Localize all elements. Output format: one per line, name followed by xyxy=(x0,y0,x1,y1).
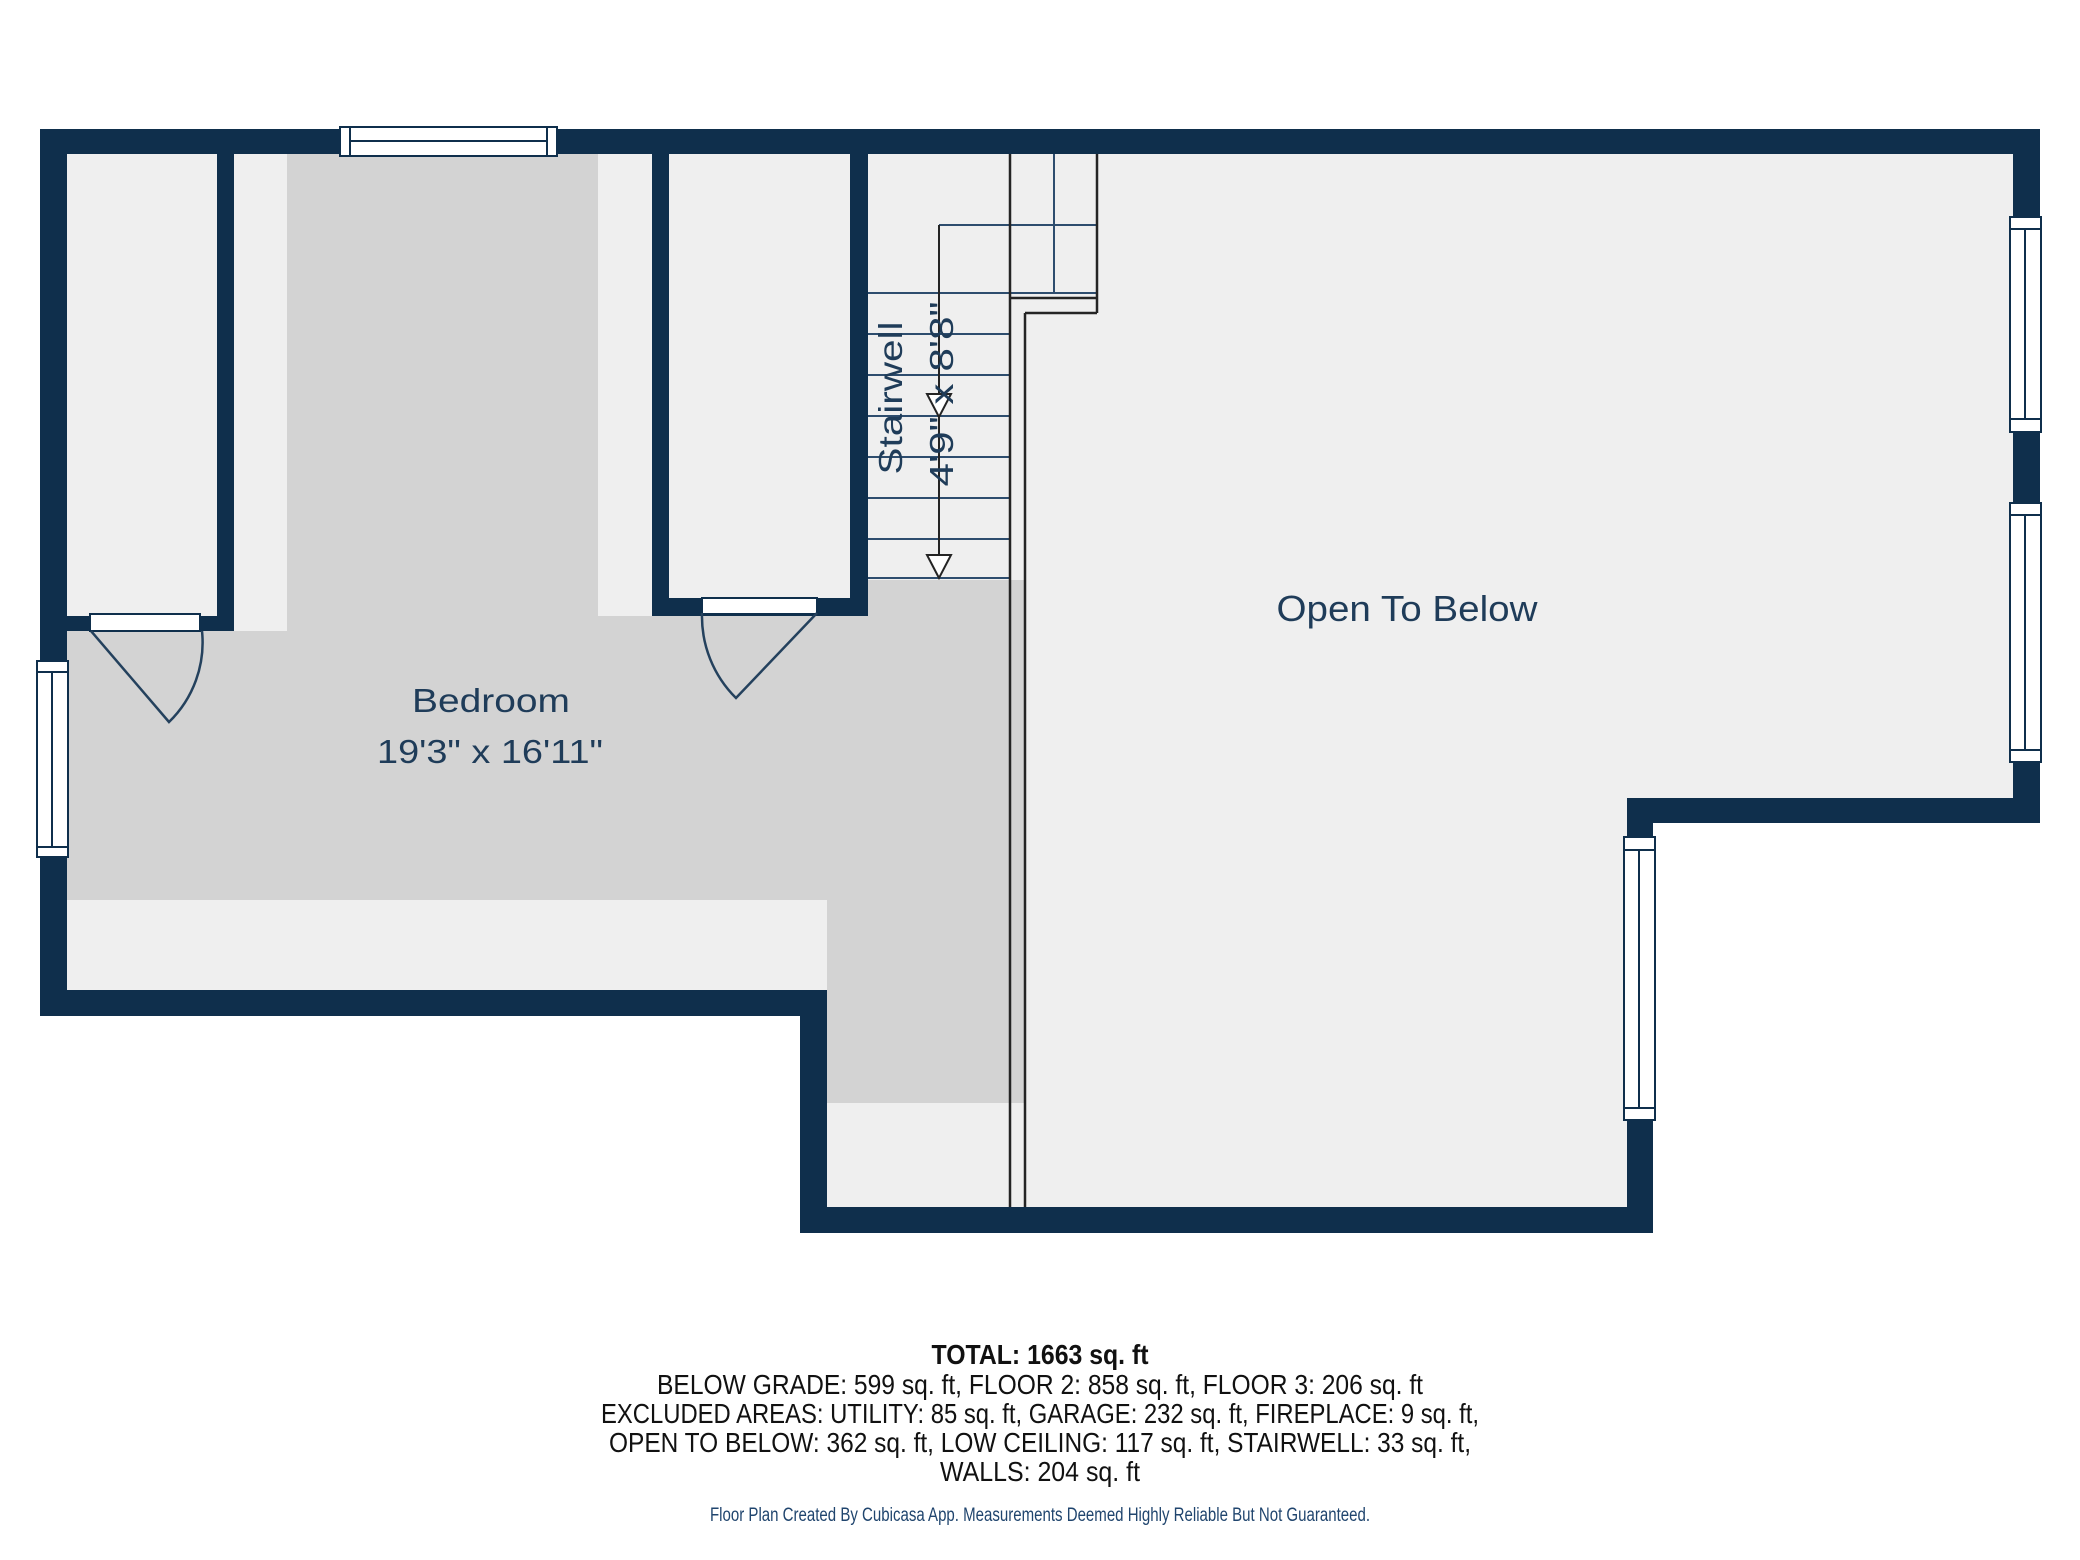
footer-note: Floor Plan Created By Cubicasa App. Meas… xyxy=(710,1505,1370,1526)
summary-walls: WALLS: 204 sq. ft xyxy=(940,1456,1140,1487)
bedroom-floor-rail-strip xyxy=(1010,580,1025,1103)
closet2-door xyxy=(702,598,817,614)
area-summary: TOTAL: 1663 sq. ft BELOW GRADE: 599 sq. … xyxy=(601,1339,1479,1526)
floor-plan: Bedroom 19'3" x 16'11" Stairwell 4'9" x … xyxy=(0,0,2080,1560)
closet1-door xyxy=(90,614,200,631)
summary-floors: BELOW GRADE: 599 sq. ft, FLOOR 2: 858 sq… xyxy=(657,1369,1423,1400)
floor-areas xyxy=(67,154,2013,1233)
bedroom-floor-main-right xyxy=(598,616,1010,900)
wall-closet2-left xyxy=(652,154,669,616)
wall-left-bottom xyxy=(40,990,827,1016)
stairwell-dimensions: 4'9" x 8'8" xyxy=(923,302,960,487)
wall-mid xyxy=(1627,798,2040,823)
bedroom-floor-understair xyxy=(868,580,1010,616)
summary-total: TOTAL: 1663 sq. ft xyxy=(932,1339,1149,1370)
open-to-below-label: Open To Below xyxy=(1277,588,1539,629)
summary-excluded-1: EXCLUDED AREAS: UTILITY: 85 sq. ft, GARA… xyxy=(601,1398,1479,1429)
wall-step xyxy=(800,990,827,1233)
window-right-upper xyxy=(2010,217,2041,432)
wall-left xyxy=(40,129,67,1016)
window-right-lower xyxy=(2010,503,2041,762)
window-top xyxy=(340,127,557,156)
bedroom-label: Bedroom xyxy=(412,682,570,719)
stairwell-label: Stairwell xyxy=(872,322,909,475)
bedroom-floor-column xyxy=(287,154,598,631)
wall-closet2-right xyxy=(850,154,868,616)
window-left xyxy=(37,661,68,857)
wall-bottom xyxy=(800,1207,1653,1233)
bedroom-dimensions: 19'3" x 16'11" xyxy=(377,733,603,770)
floor-plan-page: Bedroom 19'3" x 16'11" Stairwell 4'9" x … xyxy=(0,0,2080,1560)
window-bottom-right xyxy=(1624,837,1655,1120)
bedroom-floor-corridor xyxy=(827,900,1010,1103)
summary-excluded-2: OPEN TO BELOW: 362 sq. ft, LOW CEILING: … xyxy=(609,1427,1471,1458)
wall-closet1-right xyxy=(217,154,234,631)
